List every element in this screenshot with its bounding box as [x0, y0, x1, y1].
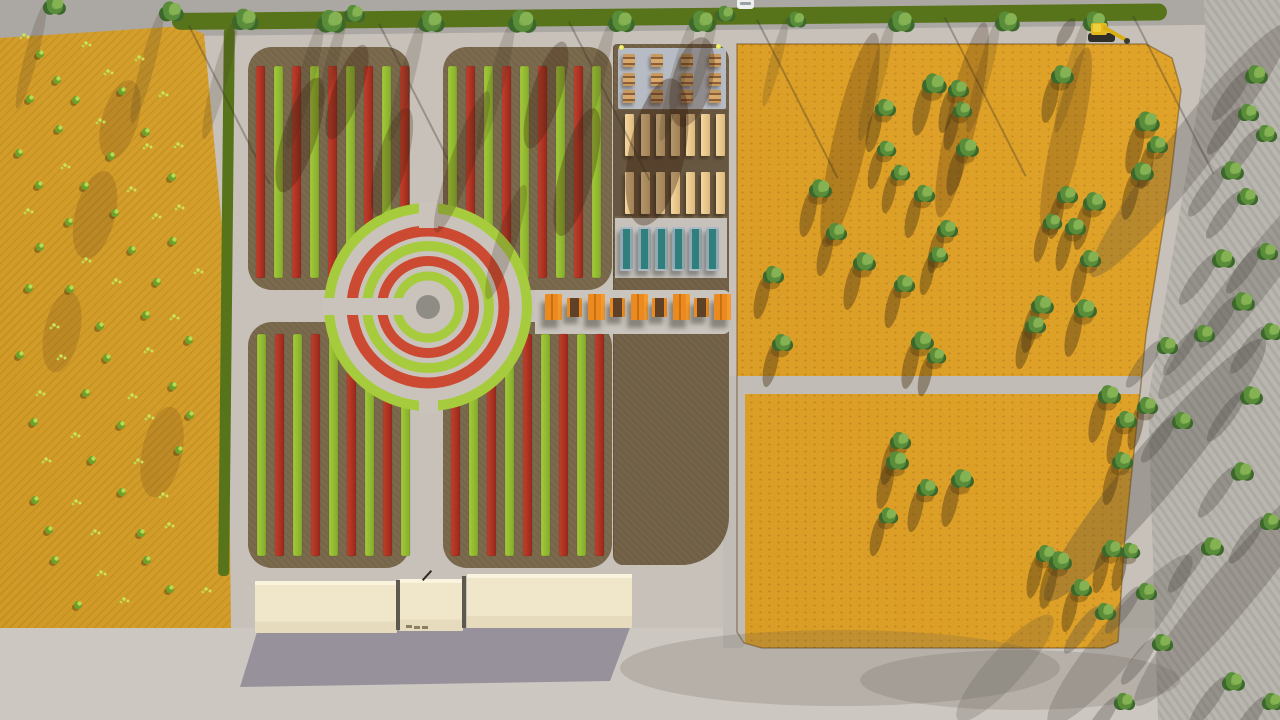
tree-canopy [995, 11, 1020, 31]
tree-canopy [1098, 385, 1121, 404]
tree-canopy [1212, 249, 1235, 268]
tree-canopy [418, 11, 445, 33]
tree-canopy [888, 11, 915, 33]
tree-canopy [772, 334, 793, 351]
sprout [147, 414, 151, 418]
sprout [98, 118, 102, 122]
sprout [146, 347, 150, 351]
planting-stripe [595, 334, 604, 556]
tree-canopy [1147, 136, 1168, 153]
tree-canopy [937, 220, 958, 237]
tree-canopy [911, 331, 934, 350]
tree-canopy [716, 6, 735, 22]
tree-canopy [877, 141, 896, 157]
tree-canopy [1222, 672, 1245, 691]
sprout [172, 314, 176, 318]
sprout [130, 393, 134, 397]
planting-stripe [257, 334, 266, 556]
tree-canopy [951, 469, 974, 488]
tree-canopy [1262, 693, 1280, 710]
sprout [38, 390, 42, 394]
sprout [177, 204, 181, 208]
tree-canopy [1135, 111, 1160, 131]
tree-canopy [787, 12, 806, 28]
planting-stripe [275, 334, 284, 556]
sprout [204, 587, 208, 591]
sprout [137, 55, 141, 59]
sprout [84, 257, 88, 261]
tree-long-shadow [758, 16, 793, 108]
planting-stripe [293, 334, 302, 556]
tree-canopy [1031, 295, 1054, 314]
sprout [84, 41, 88, 45]
sprout [26, 208, 30, 212]
planting-stripe [329, 334, 338, 556]
planting-stripe [520, 66, 529, 278]
tree-long-shadow [125, 8, 169, 125]
sprout [22, 33, 26, 37]
sprout [59, 354, 63, 358]
sprout [196, 268, 200, 272]
tree-canopy [853, 252, 876, 271]
tree-canopy [1074, 299, 1097, 318]
tree-shadow-blob [36, 288, 88, 376]
tree-long-shadow [196, 15, 243, 141]
car [737, 0, 754, 9]
planting-stripe [523, 334, 532, 556]
sprout [52, 323, 56, 327]
sprout [129, 186, 133, 190]
sprout [161, 492, 165, 496]
tree-canopy [508, 10, 536, 33]
tree-canopy [1083, 192, 1106, 211]
sprout [73, 432, 77, 436]
tree-canopy [922, 73, 947, 93]
ring-corridor [419, 390, 438, 413]
sprout [145, 143, 149, 147]
planting-stripe [541, 334, 550, 556]
tree-canopy [891, 165, 910, 181]
sprout [93, 529, 97, 533]
sprout [63, 163, 67, 167]
tree-canopy [1256, 125, 1277, 142]
tree-canopy [317, 10, 345, 33]
tree-canopy [232, 9, 259, 31]
scene-overlay [0, 0, 1280, 720]
tree-canopy [763, 266, 784, 283]
planting-stripe [256, 66, 265, 278]
tree-canopy [1095, 603, 1116, 620]
planting-stripe [559, 334, 568, 556]
tree-canopy [1201, 537, 1224, 556]
sprout [136, 458, 140, 462]
tree-canopy [879, 508, 898, 524]
tree-canopy [890, 432, 911, 449]
tree-canopy [914, 185, 935, 202]
tree-canopy [344, 5, 365, 22]
tree-canopy [689, 11, 716, 33]
sprout [106, 69, 110, 73]
tree-long-shadow [471, 17, 521, 151]
tree-canopy [43, 0, 66, 15]
ring-corridor [322, 298, 430, 315]
tree-canopy [159, 1, 184, 21]
sprout [99, 570, 103, 574]
tree-canopy [1231, 462, 1254, 481]
sprout [176, 142, 180, 146]
center-disc [416, 295, 440, 319]
sprout [74, 499, 78, 503]
planting-stripe [577, 334, 586, 556]
tree-canopy [1261, 323, 1280, 340]
tree-long-shadow [11, 2, 52, 111]
tree-canopy [1157, 337, 1178, 354]
tree-canopy [894, 275, 915, 292]
sprout [161, 91, 165, 95]
sprout [122, 597, 126, 601]
planting-stripe [311, 334, 320, 556]
sprout [44, 457, 48, 461]
sprout [114, 278, 118, 282]
tree-canopy [917, 479, 938, 496]
tree-canopy [875, 99, 896, 116]
site-plan-render: Aerial 3D site-plan render: community ga… [0, 0, 1280, 720]
sprout [167, 522, 171, 526]
sprout [154, 213, 158, 217]
tree-canopy [608, 11, 635, 33]
tree-canopy [1237, 188, 1258, 205]
